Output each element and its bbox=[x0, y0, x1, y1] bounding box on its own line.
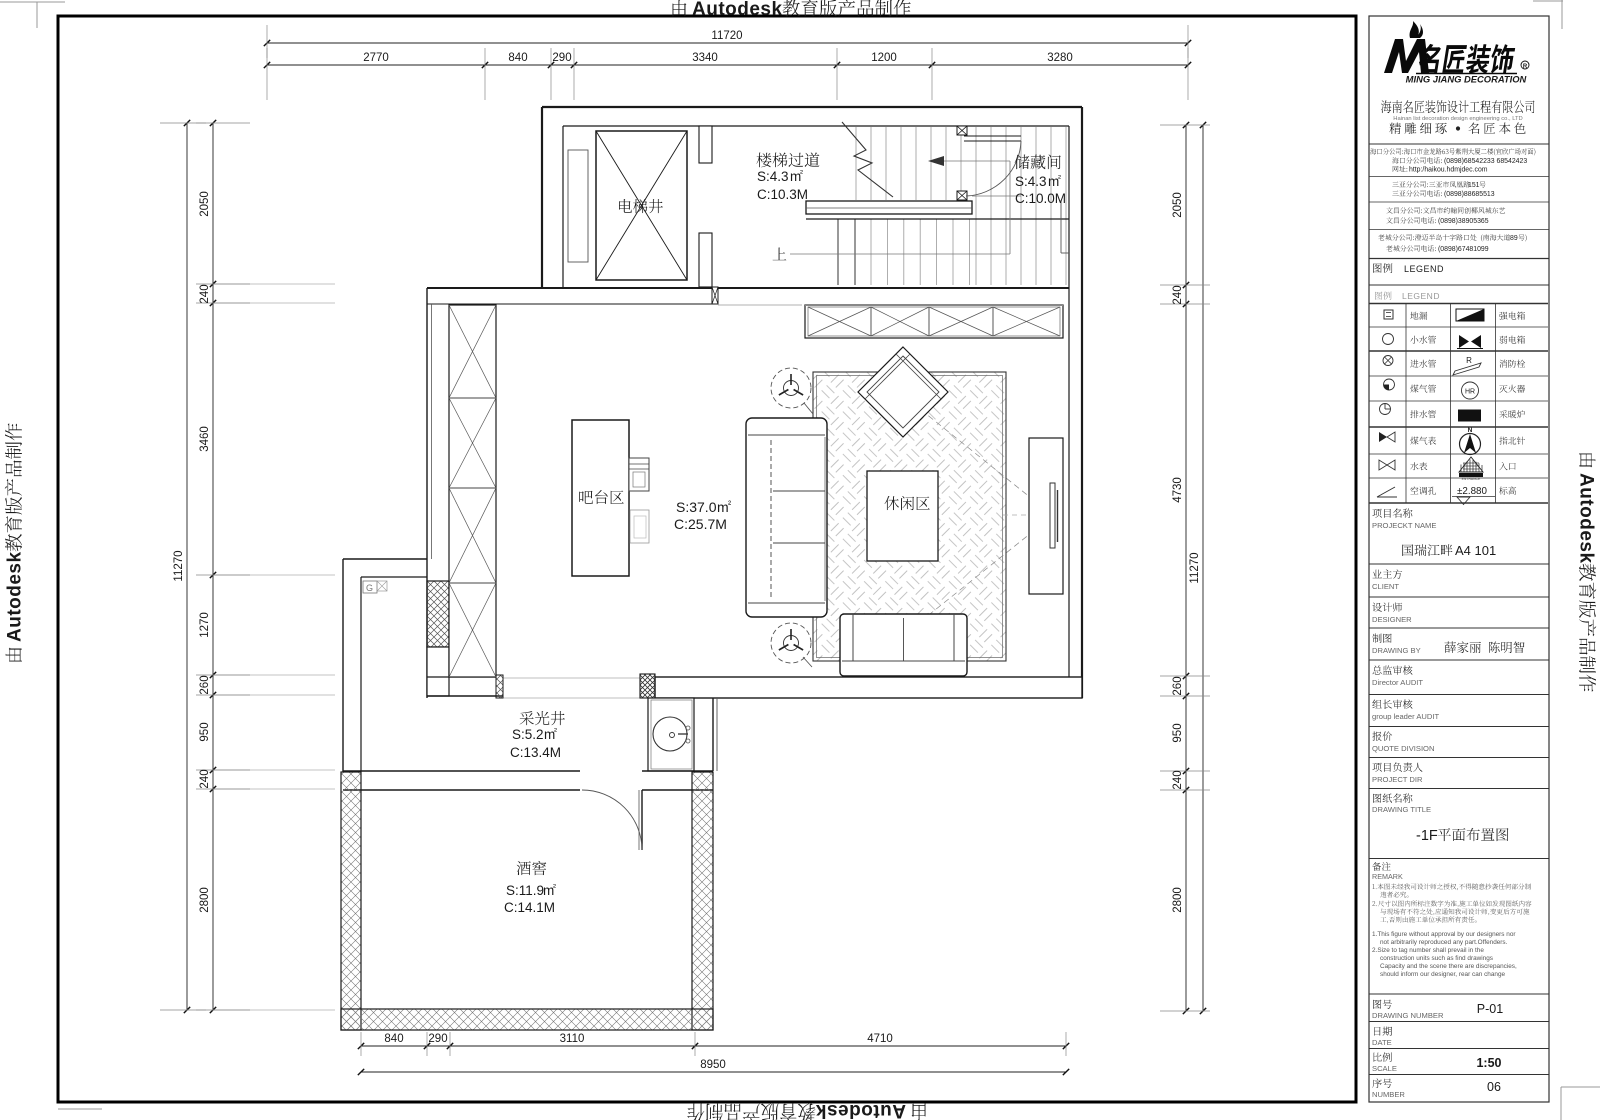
svg-text:Autodesk: Autodesk bbox=[5, 551, 26, 642]
svg-text:PROJECKT NAME: PROJECKT NAME bbox=[1372, 521, 1436, 530]
svg-text:not arbitrarily reproduced any: not arbitrarily reproduced any part.Offe… bbox=[1380, 939, 1508, 946]
svg-text:R: R bbox=[1523, 64, 1528, 70]
svg-text:CLIENT: CLIENT bbox=[1372, 582, 1399, 591]
svg-text:260: 260 bbox=[1172, 676, 1184, 695]
svg-text:1.This figure without approval: 1.This figure without approval by our de… bbox=[1372, 931, 1516, 938]
svg-text:06: 06 bbox=[1487, 1080, 1501, 1094]
svg-text:240: 240 bbox=[199, 769, 211, 788]
svg-text:S:37.0: S:37.0 bbox=[676, 499, 717, 515]
svg-text:3460: 3460 bbox=[199, 426, 211, 452]
svg-text:C:10.3M: C:10.3M bbox=[757, 187, 808, 202]
svg-text:S:11.9: S:11.9 bbox=[506, 883, 544, 898]
svg-text:C:10.0M: C:10.0M bbox=[1015, 191, 1066, 206]
svg-text:3110: 3110 bbox=[560, 1033, 585, 1045]
svg-text:Autodesk: Autodesk bbox=[1576, 473, 1597, 564]
svg-text:2050: 2050 bbox=[199, 191, 211, 217]
svg-text:1:50: 1:50 bbox=[1476, 1056, 1501, 1070]
svg-text:4710: 4710 bbox=[867, 1033, 893, 1045]
svg-text:SCALE: SCALE bbox=[1372, 1064, 1397, 1073]
svg-text:C:14.1M: C:14.1M bbox=[504, 900, 555, 915]
svg-text:PROJECT DIR: PROJECT DIR bbox=[1372, 775, 1423, 784]
svg-text:840: 840 bbox=[384, 1033, 403, 1045]
svg-text:(0898)67481099: (0898)67481099 bbox=[1438, 246, 1489, 253]
svg-text:-1F: -1F bbox=[1416, 828, 1438, 844]
svg-text:290: 290 bbox=[428, 1033, 447, 1045]
svg-text:(0898)68542233 68542423: (0898)68542233 68542423 bbox=[1444, 158, 1527, 165]
svg-text:should inform our designer, re: should inform our designer, rear can cha… bbox=[1380, 971, 1505, 978]
svg-text:QUOTE DIVISION: QUOTE DIVISION bbox=[1372, 744, 1434, 753]
svg-text:3340: 3340 bbox=[692, 52, 718, 64]
svg-text:Capacity and the scene there a: Capacity and the scene there are discrep… bbox=[1380, 963, 1517, 970]
svg-text:Autodesk: Autodesk bbox=[815, 1100, 906, 1120]
svg-text:2770: 2770 bbox=[363, 52, 389, 64]
svg-text:N: N bbox=[1468, 427, 1473, 434]
svg-text:C:13.4M: C:13.4M bbox=[510, 745, 561, 760]
svg-text:11720: 11720 bbox=[711, 30, 742, 42]
svg-text:HR: HR bbox=[1465, 389, 1475, 396]
svg-text:2.Size to tag number shall pre: 2.Size to tag number shall prevail in th… bbox=[1372, 947, 1484, 954]
svg-text:A4 101: A4 101 bbox=[1455, 543, 1496, 558]
svg-text:DATE: DATE bbox=[1372, 1038, 1392, 1047]
svg-text:REMARK: REMARK bbox=[1372, 872, 1403, 881]
svg-text:C:25.7M: C:25.7M bbox=[674, 516, 727, 532]
svg-text:ENTRANCE: ENTRANCE bbox=[1462, 477, 1481, 481]
svg-text:²: ² bbox=[728, 499, 731, 510]
svg-text:8950: 8950 bbox=[700, 1059, 726, 1071]
svg-text:DRAWING BY: DRAWING BY bbox=[1372, 646, 1421, 655]
svg-text:Director AUDIT: Director AUDIT bbox=[1372, 678, 1423, 687]
svg-text:11270: 11270 bbox=[1189, 552, 1201, 583]
svg-text:NUMBER: NUMBER bbox=[1372, 1090, 1405, 1099]
svg-text:S:4.3: S:4.3 bbox=[757, 169, 789, 184]
svg-text:260: 260 bbox=[199, 675, 211, 694]
svg-text:LEGEND: LEGEND bbox=[1404, 264, 1444, 274]
svg-text:m: m bbox=[717, 499, 729, 515]
svg-text:151: 151 bbox=[1468, 182, 1480, 189]
svg-text:construction units such as fin: construction units such as find drawings bbox=[1380, 955, 1493, 962]
svg-text:http:/haikou.hdmjdec.com: http:/haikou.hdmjdec.com bbox=[1409, 167, 1488, 174]
svg-text:LEGEND: LEGEND bbox=[1402, 291, 1440, 301]
svg-text:2050: 2050 bbox=[1172, 192, 1184, 218]
svg-text:²: ² bbox=[800, 168, 803, 178]
svg-text:2800: 2800 bbox=[1172, 887, 1184, 913]
svg-text:Autodesk: Autodesk bbox=[692, 0, 783, 20]
svg-text:1270: 1270 bbox=[199, 612, 211, 638]
svg-text:DRAWING TITLE: DRAWING TITLE bbox=[1372, 805, 1431, 814]
svg-text:S:4.3: S:4.3 bbox=[1015, 174, 1047, 189]
svg-text:G: G bbox=[366, 583, 373, 593]
svg-text:S:5.2: S:5.2 bbox=[512, 727, 544, 742]
svg-text:Hainan list decoration design: Hainan list decoration design engineerin… bbox=[1393, 116, 1522, 122]
svg-text:(0898)88685513: (0898)88685513 bbox=[1444, 191, 1495, 198]
svg-text:DESIGNER: DESIGNER bbox=[1372, 615, 1412, 624]
svg-text:11270: 11270 bbox=[173, 550, 185, 581]
svg-text:290: 290 bbox=[552, 52, 571, 64]
svg-text:950: 950 bbox=[1172, 723, 1184, 742]
svg-text:±2.880: ±2.880 bbox=[1457, 486, 1487, 497]
svg-text:²: ² bbox=[553, 882, 556, 892]
svg-text:2800: 2800 bbox=[199, 887, 211, 913]
svg-text:R: R bbox=[1466, 356, 1472, 365]
svg-text:1200: 1200 bbox=[871, 52, 897, 64]
svg-text:(0898)38905365: (0898)38905365 bbox=[1438, 218, 1489, 225]
svg-text:group leader AUDIT: group leader AUDIT bbox=[1372, 712, 1439, 721]
svg-text:89: 89 bbox=[1510, 235, 1518, 242]
svg-text:840: 840 bbox=[508, 52, 527, 64]
svg-text:²: ² bbox=[1058, 173, 1061, 183]
svg-text:950: 950 bbox=[199, 722, 211, 741]
svg-text:240: 240 bbox=[1172, 770, 1184, 789]
svg-text:3280: 3280 bbox=[1047, 52, 1073, 64]
svg-text:4730: 4730 bbox=[1172, 477, 1184, 503]
svg-text:240: 240 bbox=[1172, 285, 1184, 304]
svg-text:240: 240 bbox=[199, 284, 211, 303]
svg-text:P-01: P-01 bbox=[1477, 1002, 1503, 1016]
svg-text:DRAWING NUMBER: DRAWING NUMBER bbox=[1372, 1011, 1444, 1020]
svg-text:²: ² bbox=[554, 726, 557, 736]
svg-text:MING JIANG DECORATION: MING JIANG DECORATION bbox=[1406, 74, 1527, 85]
